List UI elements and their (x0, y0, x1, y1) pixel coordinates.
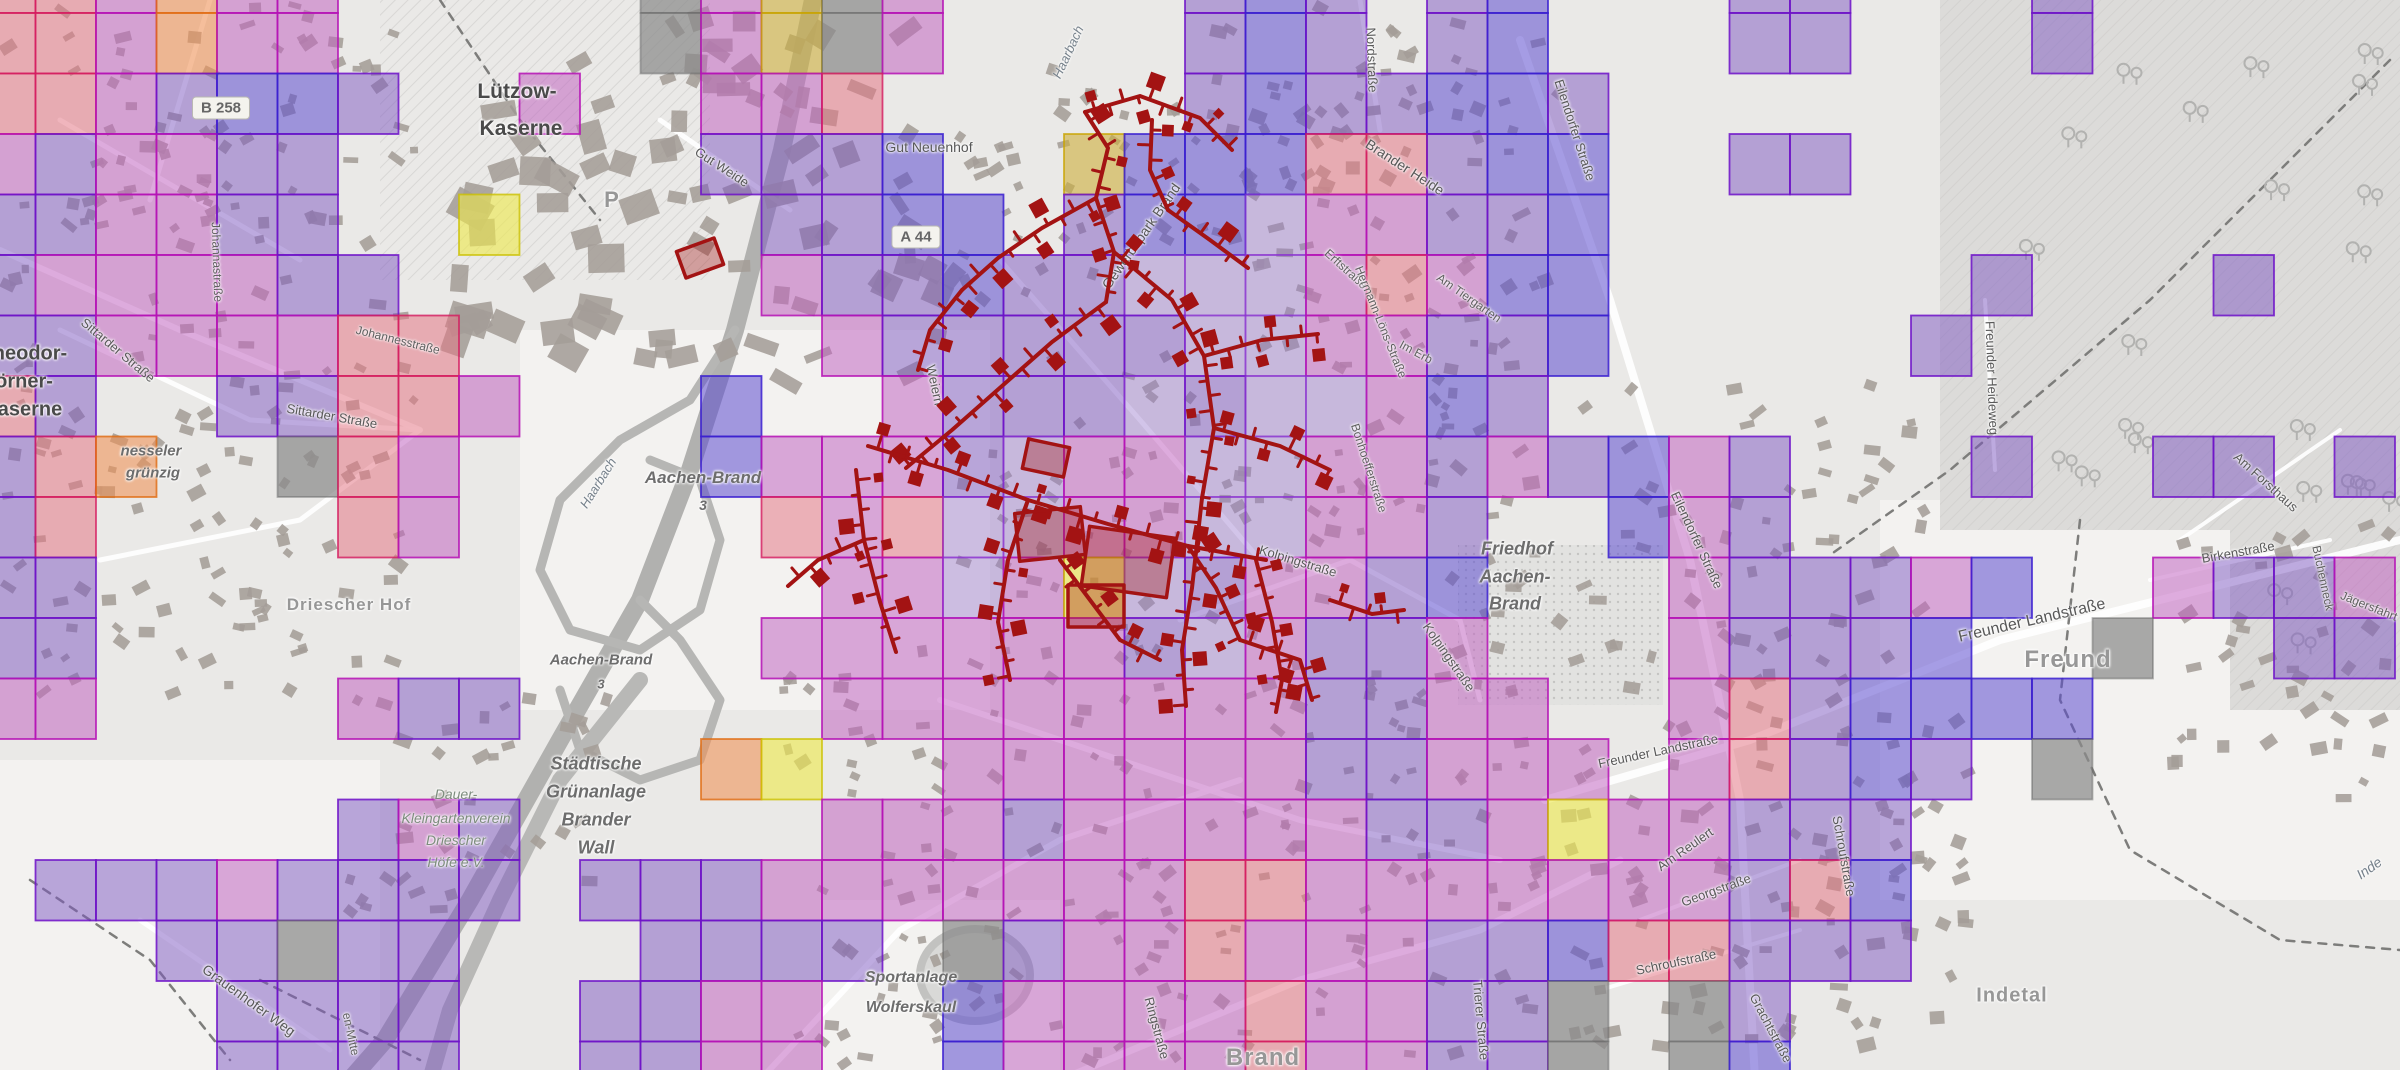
grid-cell (2153, 437, 2214, 498)
grid-cell (1064, 800, 1125, 861)
grid-cell (1972, 679, 2033, 740)
grid-cell (1488, 195, 1549, 256)
grid-cell (1185, 981, 1246, 1042)
grid-cell (1185, 739, 1246, 800)
grid-cell (217, 1042, 278, 1070)
grid-cell (1851, 679, 1912, 740)
grid-cell (1246, 800, 1307, 861)
grid-cell (459, 679, 520, 740)
grid-cell (1669, 1042, 1730, 1070)
grid-cell (1246, 981, 1307, 1042)
grid-cell (883, 376, 944, 437)
grid-cell (822, 316, 883, 377)
grid-cell (1972, 255, 2033, 316)
grid-cell (1548, 860, 1609, 921)
grid-cell (762, 134, 823, 195)
grid-cell (399, 800, 460, 861)
grid-cell (2153, 558, 2214, 619)
grid-cell (1064, 981, 1125, 1042)
grid-cell (1790, 13, 1851, 74)
grid-cell (822, 195, 883, 256)
grid-cell (1246, 74, 1307, 135)
grid-cell (96, 134, 157, 195)
grid-cell (883, 195, 944, 256)
grid-cell (1125, 981, 1186, 1042)
grid-cell (1004, 679, 1065, 740)
grid-cell (641, 860, 702, 921)
grid-cell (1488, 921, 1549, 982)
grid-cell (1427, 0, 1488, 13)
grid-cell (278, 0, 339, 13)
grid-cell (1730, 739, 1791, 800)
grid-cell (1427, 437, 1488, 498)
grid-cell (1367, 437, 1428, 498)
grid-cell (1246, 255, 1307, 316)
grid-cell (36, 316, 97, 377)
grid-cell (1064, 860, 1125, 921)
grid-cell (338, 316, 399, 377)
grid-cell (1851, 860, 1912, 921)
grid-cell (1125, 195, 1186, 256)
grid-cell (1911, 739, 1972, 800)
grid-cell (1427, 981, 1488, 1042)
grid-cell (1306, 195, 1367, 256)
grid-cell (1730, 558, 1791, 619)
grid-cell (762, 981, 823, 1042)
grid-cell (943, 497, 1004, 558)
grid-cell (1185, 1042, 1246, 1070)
grid-cell (0, 618, 36, 679)
grid-cell (943, 376, 1004, 437)
grid-cell (1972, 558, 2033, 619)
grid-cell (1306, 921, 1367, 982)
grid-cell (1730, 679, 1791, 740)
grid-cell (1790, 860, 1851, 921)
grid-cell (278, 860, 339, 921)
grid-cell (1669, 981, 1730, 1042)
grid-cell (762, 921, 823, 982)
grid-cell (1427, 74, 1488, 135)
grid-cell (1306, 679, 1367, 740)
grid-cell (0, 558, 36, 619)
grid-cell (1064, 1042, 1125, 1070)
grid-cell (1851, 739, 1912, 800)
grid-cell (1125, 316, 1186, 377)
grid-cell (36, 376, 97, 437)
grid-cell (399, 921, 460, 982)
grid-cell (1790, 618, 1851, 679)
grid-cell (2032, 679, 2093, 740)
grid-cell (1548, 739, 1609, 800)
grid-cell (1306, 618, 1367, 679)
grid-cell (1125, 558, 1186, 619)
grid-cell (1548, 800, 1609, 861)
grid-cell (278, 316, 339, 377)
grid-cell (1367, 921, 1428, 982)
grid-cell (1004, 316, 1065, 377)
grid-cell (1125, 800, 1186, 861)
grid-cell (157, 13, 218, 74)
grid-cell (1790, 134, 1851, 195)
grid-cell (459, 195, 520, 256)
grid-cell (1306, 437, 1367, 498)
grid-cell (96, 195, 157, 256)
grid-cell (1246, 1042, 1307, 1070)
grid-cell (1185, 558, 1246, 619)
grid-cell (1427, 679, 1488, 740)
grid-cell (399, 376, 460, 437)
grid-cell (641, 981, 702, 1042)
grid-cell (701, 376, 762, 437)
grid-cell (1004, 376, 1065, 437)
grid-cell (1185, 860, 1246, 921)
grid-cell (1548, 74, 1609, 135)
grid-cell (762, 0, 823, 13)
grid-cell (36, 558, 97, 619)
grid-cell (762, 739, 823, 800)
grid-cell (36, 618, 97, 679)
grid-cell (217, 134, 278, 195)
grid-cell (1669, 497, 1730, 558)
grid-cell (1125, 679, 1186, 740)
grid-cell (641, 1042, 702, 1070)
grid-cell (1548, 921, 1609, 982)
grid-cell (701, 1042, 762, 1070)
grid-cell (0, 195, 36, 256)
map-canvas[interactable]: Lützow-Kaserneheodor-örner-aserneGut Neu… (0, 0, 2400, 1070)
grid-cell (943, 437, 1004, 498)
grid-cell (1125, 134, 1186, 195)
grid-cell (1488, 860, 1549, 921)
grid-cell (943, 195, 1004, 256)
grid-cell (1306, 13, 1367, 74)
grid-cell (943, 316, 1004, 377)
grid-cell (1488, 800, 1549, 861)
grid-cell (1185, 497, 1246, 558)
grid-cell (1367, 497, 1428, 558)
grid-cell (883, 0, 944, 13)
grid-cell (1246, 618, 1307, 679)
grid-cell (762, 618, 823, 679)
grid-cell (762, 497, 823, 558)
grid-cell (1125, 1042, 1186, 1070)
grid-cell (943, 921, 1004, 982)
grid-cell (1125, 437, 1186, 498)
grid-cell (1306, 739, 1367, 800)
grid-cell (1427, 497, 1488, 558)
grid-cell (1246, 13, 1307, 74)
grid-cell (822, 437, 883, 498)
grid-cell (883, 255, 944, 316)
grid-cell (822, 679, 883, 740)
grid-cell (1185, 679, 1246, 740)
grid-cell (2093, 618, 2154, 679)
grid-cell (1367, 1042, 1428, 1070)
grid-cell (36, 497, 97, 558)
grid-cell (1488, 437, 1549, 498)
grid-cell (278, 921, 339, 982)
grid-cell (762, 860, 823, 921)
grid-cell (822, 74, 883, 135)
grid-cell (822, 255, 883, 316)
grid-cell (883, 679, 944, 740)
grid-cell (520, 74, 581, 135)
grid-cell (1911, 679, 1972, 740)
grid-cell (278, 134, 339, 195)
grid-cell (701, 739, 762, 800)
grid-cell (1488, 74, 1549, 135)
grid-cell (1064, 739, 1125, 800)
grid-cell (1246, 739, 1307, 800)
grid-cell (0, 316, 36, 377)
grid-cell (883, 497, 944, 558)
grid-cell (1246, 0, 1307, 13)
grid-cell (278, 195, 339, 256)
grid-cell (762, 1042, 823, 1070)
grid-cell (883, 860, 944, 921)
grid-cell (1548, 316, 1609, 377)
grid-cell (1427, 13, 1488, 74)
grid-cell (217, 981, 278, 1042)
grid-cell (1609, 921, 1670, 982)
grid-cell (1246, 195, 1307, 256)
grid-cell (1367, 860, 1428, 921)
grid-cell (36, 255, 97, 316)
grid-cell (217, 255, 278, 316)
grid-cell (1306, 497, 1367, 558)
basemap-and-heatgrid-layer (0, 0, 2400, 1070)
grid-cell (1367, 316, 1428, 377)
grid-cell (1669, 860, 1730, 921)
grid-cell (1185, 800, 1246, 861)
grid-cell (822, 0, 883, 13)
grid-cell (1669, 437, 1730, 498)
grid-cell (1125, 618, 1186, 679)
grid-cell (0, 497, 36, 558)
grid-cell (96, 437, 157, 498)
grid-cell (1004, 981, 1065, 1042)
grid-cell (0, 376, 36, 437)
grid-cell (157, 195, 218, 256)
grid-cell (2214, 255, 2275, 316)
grid-cell (0, 13, 36, 74)
grid-cell (762, 255, 823, 316)
grid-cell (338, 437, 399, 498)
grid-cell (762, 74, 823, 135)
grid-cell (1730, 800, 1791, 861)
grid-cell (883, 437, 944, 498)
grid-cell (1730, 1042, 1791, 1070)
grid-cell (883, 134, 944, 195)
grid-cell (278, 1042, 339, 1070)
grid-cell (278, 376, 339, 437)
grid-cell (1185, 376, 1246, 437)
grid-cell (2214, 437, 2275, 498)
grid-cell (338, 921, 399, 982)
grid-cell (883, 558, 944, 619)
grid-cell (1246, 860, 1307, 921)
grid-cell (1427, 739, 1488, 800)
grid-cell (2274, 558, 2335, 619)
grid-cell (338, 376, 399, 437)
grid-cell (1367, 558, 1428, 619)
grid-cell (399, 860, 460, 921)
grid-cell (2032, 739, 2093, 800)
grid-cell (1004, 739, 1065, 800)
grid-cell (1790, 739, 1851, 800)
grid-cell (399, 679, 460, 740)
grid-cell (701, 74, 762, 135)
grid-cell (701, 437, 762, 498)
grid-cell (2335, 437, 2396, 498)
grid-cell (0, 679, 36, 740)
grid-cell (1125, 255, 1186, 316)
grid-cell (1427, 376, 1488, 437)
grid-cell (883, 800, 944, 861)
grid-cell (1185, 0, 1246, 13)
grid-cell (1185, 437, 1246, 498)
grid-cell (822, 558, 883, 619)
grid-cell (1427, 134, 1488, 195)
grid-cell (1064, 316, 1125, 377)
grid-cell (701, 0, 762, 13)
grid-cell (822, 618, 883, 679)
grid-cell (399, 1042, 460, 1070)
grid-cell (1125, 860, 1186, 921)
grid-cell (1367, 800, 1428, 861)
grid-cell (1427, 195, 1488, 256)
grid-cell (1185, 921, 1246, 982)
grid-cell (1488, 1042, 1549, 1070)
grid-cell (36, 13, 97, 74)
grid-cell (1306, 316, 1367, 377)
grid-cell (1730, 618, 1791, 679)
grid-cell (217, 921, 278, 982)
grid-cell (1367, 739, 1428, 800)
grid-cell (1488, 739, 1549, 800)
grid-cell (1488, 134, 1549, 195)
grid-cell (1851, 618, 1912, 679)
grid-cell (36, 74, 97, 135)
grid-cell (822, 921, 883, 982)
grid-cell (1246, 134, 1307, 195)
grid-cell (217, 860, 278, 921)
grid-cell (1609, 437, 1670, 498)
grid-cell (1730, 497, 1791, 558)
grid-cell (1125, 376, 1186, 437)
grid-cell (1730, 437, 1791, 498)
grid-cell (217, 0, 278, 13)
grid-cell (1669, 558, 1730, 619)
grid-cell (1790, 679, 1851, 740)
grid-cell (1548, 255, 1609, 316)
grid-cell (399, 437, 460, 498)
grid-cell (338, 981, 399, 1042)
grid-cell (1548, 437, 1609, 498)
grid-cell (217, 316, 278, 377)
grid-cell (1004, 255, 1065, 316)
grid-cell (0, 437, 36, 498)
grid-cell (1367, 74, 1428, 135)
grid-cell (1548, 195, 1609, 256)
grid-cell (1306, 74, 1367, 135)
grid-cell (1911, 618, 1972, 679)
grid-cell (1004, 618, 1065, 679)
grid-cell (96, 255, 157, 316)
grid-cell (1609, 497, 1670, 558)
grid-cell (96, 316, 157, 377)
grid-cell (1064, 497, 1125, 558)
grid-cell (1427, 1042, 1488, 1070)
grid-cell (1306, 134, 1367, 195)
grid-cell (338, 1042, 399, 1070)
grid-cell (2032, 13, 2093, 74)
grid-cell (1306, 860, 1367, 921)
grid-cell (943, 558, 1004, 619)
grid-cell (278, 437, 339, 498)
grid-cell (96, 13, 157, 74)
grid-cell (36, 0, 97, 13)
grid-cell (883, 618, 944, 679)
grid-cell (1306, 558, 1367, 619)
grid-cell (943, 255, 1004, 316)
grid-cell (762, 195, 823, 256)
grid-cell (399, 497, 460, 558)
grid-cell (1548, 1042, 1609, 1070)
grid-cell (1004, 860, 1065, 921)
grid-cell (701, 134, 762, 195)
grid-cell (1246, 316, 1307, 377)
grid-cell (338, 255, 399, 316)
grid-cell (157, 316, 218, 377)
grid-cell (338, 679, 399, 740)
grid-cell (1730, 134, 1791, 195)
grid-cell (641, 0, 702, 13)
grid-cell (1488, 0, 1549, 13)
grid-cell (157, 134, 218, 195)
grid-cell (36, 195, 97, 256)
grid-cell (338, 497, 399, 558)
grid-cell (822, 860, 883, 921)
grid-cell (1185, 74, 1246, 135)
grid-cell (1064, 195, 1125, 256)
grid-cell (0, 255, 36, 316)
grid-cell (1367, 679, 1428, 740)
grid-cell (399, 981, 460, 1042)
grid-cell (1730, 0, 1791, 13)
grid-cell (1427, 255, 1488, 316)
grid-cell (0, 134, 36, 195)
grid-cell (399, 316, 460, 377)
grid-cell (2274, 618, 2335, 679)
grid-cell (1790, 800, 1851, 861)
grid-cell (943, 618, 1004, 679)
grid-cell (1669, 679, 1730, 740)
grid-cell (762, 13, 823, 74)
grid-cell (278, 13, 339, 74)
grid-cell (701, 13, 762, 74)
grid-cell (1851, 558, 1912, 619)
grid-cell (1911, 558, 1972, 619)
grid-cell (1790, 921, 1851, 982)
grid-cell (822, 134, 883, 195)
grid-cell (1548, 134, 1609, 195)
grid-cell (1064, 558, 1125, 619)
grid-cell (0, 0, 36, 13)
grid-cell (459, 860, 520, 921)
grid-cell (459, 376, 520, 437)
grid-cell (217, 376, 278, 437)
